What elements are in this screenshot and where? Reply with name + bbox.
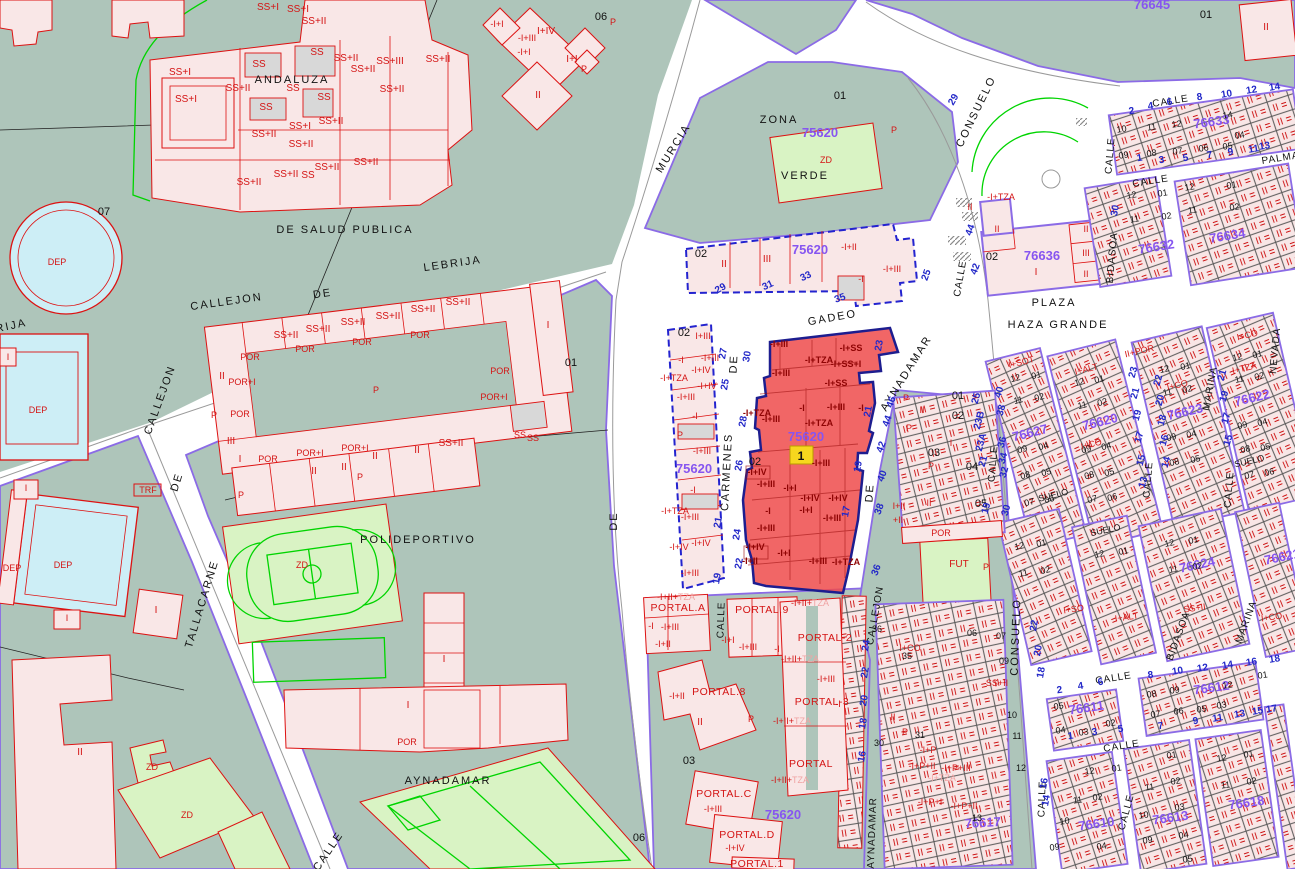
map-label: TRF bbox=[139, 485, 157, 495]
map-label: I bbox=[25, 483, 28, 493]
map-label: ZD bbox=[296, 560, 308, 570]
map-label: -I+III bbox=[681, 568, 699, 578]
map-label: 14 bbox=[1222, 109, 1233, 120]
map-label: -I+II bbox=[841, 242, 857, 252]
map-label: -I+II+TZA bbox=[781, 654, 819, 664]
map-label: 75620 bbox=[802, 125, 838, 140]
map-label: -I+II+TZA bbox=[773, 716, 811, 726]
map-label: SS+II bbox=[274, 169, 299, 180]
map-label: POR bbox=[490, 366, 510, 376]
map-label: 10 bbox=[1138, 809, 1149, 820]
plaza-stairs-3 bbox=[948, 236, 966, 245]
map-label: -I+III bbox=[817, 674, 835, 684]
map-label: -I+TZA bbox=[805, 355, 834, 365]
map-label: 19 bbox=[1131, 408, 1145, 422]
map-label: SS bbox=[259, 102, 273, 113]
map-label: -I+I bbox=[777, 548, 790, 558]
map-label: SS+I bbox=[175, 94, 197, 105]
map-label: -I bbox=[774, 644, 780, 654]
map-label: -I+P+II bbox=[908, 761, 935, 771]
map-label: 07 bbox=[1150, 708, 1161, 719]
map-label: PLAZA bbox=[1032, 297, 1077, 309]
map-label: -I+SS+I bbox=[831, 359, 862, 369]
map-label: 01 bbox=[1257, 669, 1268, 680]
map-label: -I+IV bbox=[800, 493, 819, 503]
map-label: POR bbox=[352, 337, 372, 347]
map-label: 5 bbox=[1117, 724, 1125, 736]
map-label: I+III bbox=[695, 331, 710, 341]
map-label: 75620 bbox=[792, 242, 828, 257]
map-label: DEP bbox=[29, 405, 48, 415]
map-label: POR+I bbox=[341, 443, 368, 453]
map-label: PORTAL.C bbox=[696, 788, 752, 800]
map-label: -I+I bbox=[517, 47, 530, 57]
map-label: PORTAL-2 bbox=[798, 632, 852, 644]
map-label: 75620 bbox=[788, 429, 824, 444]
map-label: 13 bbox=[972, 813, 982, 823]
map-label: POR+I bbox=[480, 392, 507, 402]
map-label: 11 bbox=[1144, 781, 1155, 792]
map-label: 12 bbox=[1093, 548, 1105, 560]
map-label: -I+III bbox=[770, 339, 788, 349]
dense-block-76624[interactable] bbox=[1139, 509, 1250, 661]
map-label: +II bbox=[893, 515, 903, 525]
map-label: 11 bbox=[1212, 712, 1225, 725]
map-label: 75620 bbox=[765, 807, 801, 822]
map-label: P bbox=[748, 714, 754, 724]
map-label: II bbox=[994, 224, 999, 234]
map-label: P bbox=[891, 125, 897, 135]
map-label: -I+II bbox=[742, 556, 758, 566]
map-label: 01 bbox=[1187, 534, 1199, 546]
map-label: 02 bbox=[1229, 201, 1240, 212]
map-label: 32 bbox=[998, 465, 1012, 479]
map-label: -I bbox=[678, 355, 684, 365]
map-label: 05 bbox=[1196, 703, 1207, 714]
plaza-tree-arc-1 bbox=[972, 98, 1088, 172]
map-label: ZD bbox=[181, 810, 193, 820]
map-label: I bbox=[547, 320, 550, 331]
map-label: P bbox=[581, 64, 587, 74]
map-label: 06 bbox=[633, 832, 645, 844]
map-label: 02 bbox=[1161, 210, 1172, 221]
cadastral-map-stage: 1 ANDALUZADE SALUD PUBLICACALLEJONDELEBR… bbox=[0, 0, 1295, 869]
map-label: SS bbox=[527, 433, 539, 443]
map-label: POR+I bbox=[296, 448, 323, 458]
map-label: CALLE bbox=[952, 260, 969, 298]
map-label: II bbox=[1083, 224, 1088, 234]
map-label: 01 bbox=[1243, 748, 1254, 759]
map-label: 05 bbox=[1182, 853, 1193, 864]
map-label: 06 bbox=[595, 11, 607, 23]
map-label: SS+I bbox=[287, 4, 309, 15]
map-label: SS+II bbox=[380, 84, 405, 95]
map-label: SS+II bbox=[351, 64, 376, 75]
map-label: -I+III bbox=[701, 353, 719, 363]
map-label: -I+IV bbox=[828, 493, 847, 503]
map-label: -I+III bbox=[809, 556, 827, 566]
map-label: 14 bbox=[1221, 659, 1234, 672]
map-label: -I bbox=[799, 403, 805, 413]
map-label: I bbox=[407, 700, 410, 711]
map-label: 02 bbox=[1092, 791, 1103, 802]
map-label: I bbox=[443, 654, 446, 665]
map-label: 02 bbox=[695, 248, 707, 260]
map-label: 08 bbox=[1146, 147, 1157, 158]
map-label: -I+IV bbox=[745, 542, 764, 552]
map-label: POR bbox=[230, 409, 250, 419]
map-label: ZD bbox=[820, 155, 832, 165]
map-label: II bbox=[697, 717, 703, 728]
map-label: 03 bbox=[1174, 801, 1185, 812]
map-label: VERDE bbox=[781, 170, 829, 182]
map-label: 36 bbox=[872, 624, 882, 634]
map-label: -I bbox=[858, 274, 864, 284]
map-label: II bbox=[967, 202, 972, 212]
u-building-gray-ss[interactable] bbox=[510, 401, 547, 431]
map-label: SS+II bbox=[446, 297, 471, 308]
map-label: -I bbox=[690, 485, 696, 495]
map-label: 30 bbox=[741, 350, 754, 363]
map-label: 31 bbox=[915, 730, 925, 740]
map-label: 42 bbox=[969, 262, 983, 277]
map-label: SS+II bbox=[274, 330, 299, 341]
map-label: -I+I bbox=[721, 635, 734, 645]
map-label: 16 bbox=[1245, 656, 1258, 669]
plaza-tree-arc-2 bbox=[982, 132, 1078, 196]
map-label: CARMENES bbox=[719, 432, 735, 511]
map-label: GADEO bbox=[807, 308, 858, 328]
map-label: 30 bbox=[1000, 503, 1014, 517]
map-label: SS+II bbox=[289, 139, 314, 150]
map-label: SS+I bbox=[289, 121, 311, 132]
map-label: -I+III bbox=[772, 368, 790, 378]
map-label: 12 bbox=[1216, 752, 1227, 763]
map-label: 12 bbox=[1245, 84, 1258, 97]
map-label: 4 bbox=[1077, 681, 1085, 693]
map-label: II bbox=[1263, 22, 1269, 33]
map-label: POLIDEPORTIVO bbox=[360, 534, 476, 546]
block-top-wedge[interactable] bbox=[705, 0, 856, 54]
map-label: SS+II bbox=[334, 53, 359, 64]
map-label: 01 bbox=[952, 390, 964, 402]
map-label: 01 bbox=[565, 357, 577, 369]
map-label: POR bbox=[410, 330, 430, 340]
map-label: HAZA GRANDE bbox=[1008, 319, 1109, 331]
map-label: 02 bbox=[986, 251, 998, 263]
map-label: SS bbox=[514, 430, 526, 440]
map-label: DEP bbox=[3, 563, 22, 573]
map-label: 10 bbox=[1220, 88, 1233, 101]
map-label: -I+II bbox=[655, 639, 671, 649]
map-label: II bbox=[341, 462, 347, 473]
map-label: DEP bbox=[54, 560, 73, 570]
map-label: -I+I bbox=[490, 19, 503, 29]
map-label: -I bbox=[835, 699, 841, 709]
map-label: PORTAL-3 bbox=[795, 696, 849, 708]
map-label: 24 bbox=[731, 528, 744, 541]
map-label: I+I bbox=[566, 54, 577, 65]
map-label: -I+IV bbox=[691, 365, 710, 375]
map-label: SS+II bbox=[986, 678, 1008, 688]
map-label: II bbox=[535, 90, 541, 101]
map-label: 11 bbox=[1187, 204, 1198, 215]
map-label: 76617 bbox=[964, 814, 1001, 831]
map-label: SS+II bbox=[341, 317, 366, 328]
map-label: SS+II bbox=[426, 54, 451, 65]
plaza-stairs-4 bbox=[953, 252, 971, 261]
map-label: SS+I bbox=[257, 2, 279, 13]
map-label: DEP bbox=[48, 257, 67, 267]
dashed-parcel-west-gray-1 bbox=[678, 424, 714, 439]
map-label: -I+III bbox=[681, 512, 699, 522]
map-label: I+II bbox=[893, 501, 906, 511]
cadastral-map-canvas[interactable]: 1 ANDALUZADE SALUD PUBLICACALLEJONDELEBR… bbox=[0, 0, 1295, 869]
map-label: SS+II bbox=[411, 304, 436, 315]
map-label: -I+III bbox=[677, 392, 695, 402]
map-label: -I+P bbox=[920, 745, 937, 755]
map-label: DE SALUD PUBLICA bbox=[276, 224, 413, 236]
map-label: 04 bbox=[1055, 724, 1066, 735]
map-label: -I+TZA bbox=[660, 373, 688, 383]
map-label: POR bbox=[240, 352, 260, 362]
map-label: 12 bbox=[1016, 763, 1026, 773]
map-label: 12 bbox=[1184, 181, 1195, 192]
map-label: 09 bbox=[1169, 684, 1180, 695]
map-label: SS bbox=[310, 47, 324, 58]
map-label: -I+TZA bbox=[805, 418, 834, 428]
map-label: -I+III bbox=[827, 402, 845, 412]
map-label: SS+II bbox=[376, 311, 401, 322]
big-bottom-building[interactable] bbox=[284, 684, 568, 752]
map-label: -I+III bbox=[757, 479, 775, 489]
map-label: -I+II+TZA bbox=[771, 775, 809, 785]
small-building-i[interactable] bbox=[133, 589, 183, 639]
map-label: III bbox=[1082, 248, 1090, 258]
map-label: II bbox=[919, 405, 924, 415]
map-label: SS+II bbox=[315, 162, 340, 173]
map-label: II bbox=[219, 371, 225, 382]
map-label: -I bbox=[858, 403, 864, 413]
map-label: II bbox=[311, 466, 317, 477]
map-label: 02 bbox=[952, 410, 964, 422]
map-label: SS+II bbox=[354, 157, 379, 168]
map-label: 14 bbox=[1268, 81, 1281, 94]
andaluza-ss-court[interactable] bbox=[162, 78, 234, 148]
map-label: ZD bbox=[146, 762, 158, 772]
map-label: 17 bbox=[1265, 703, 1278, 716]
map-label: I bbox=[1035, 267, 1038, 278]
map-label: 05 bbox=[1053, 700, 1064, 711]
map-label: 01 bbox=[1226, 179, 1237, 190]
map-label: -I+P+I bbox=[918, 797, 943, 807]
map-label: SS+II bbox=[226, 83, 251, 94]
map-label: -I+TZA bbox=[987, 192, 1015, 202]
map-label: III bbox=[227, 436, 235, 447]
map-label: P bbox=[928, 461, 934, 471]
map-label: II bbox=[926, 498, 931, 508]
map-label: SS+II bbox=[302, 16, 327, 27]
map-label: 44 bbox=[964, 223, 978, 238]
map-label: -I+III bbox=[757, 523, 775, 533]
map-label: POR bbox=[258, 454, 278, 464]
map-label: -I+III bbox=[518, 33, 536, 43]
map-label: -I+III bbox=[661, 622, 679, 632]
map-label: 2 bbox=[1056, 685, 1064, 697]
map-label: 10 bbox=[1059, 815, 1070, 826]
map-label: 25 bbox=[920, 268, 934, 283]
map-label: -I+IV bbox=[669, 542, 688, 552]
map-label: POR bbox=[931, 528, 951, 538]
map-label: DE bbox=[728, 354, 741, 374]
map-label: CONSUELO bbox=[954, 74, 999, 149]
map-label: -I+IV bbox=[725, 843, 744, 853]
map-label: -I+III bbox=[823, 513, 841, 523]
map-label: 18 bbox=[1268, 653, 1281, 666]
map-label: II bbox=[1083, 269, 1088, 279]
map-label: P bbox=[983, 562, 989, 572]
map-label: 21 bbox=[1129, 386, 1143, 400]
map-label: POR+I bbox=[228, 377, 255, 387]
map-label: CONSUELO bbox=[1009, 598, 1024, 676]
map-label: ZONA bbox=[760, 114, 799, 126]
map-label: I+IV bbox=[537, 26, 555, 37]
map-label: 06 bbox=[967, 628, 977, 638]
selected-parcel-number: 1 bbox=[798, 449, 805, 463]
dense-block-76613[interactable] bbox=[1124, 740, 1207, 869]
map-label: -I bbox=[648, 621, 654, 631]
map-label: 11 bbox=[1146, 121, 1157, 132]
map-label: 26 bbox=[733, 459, 746, 472]
map-label: -I+I bbox=[783, 483, 796, 493]
map-label: 06 bbox=[1173, 705, 1184, 716]
map-label: I bbox=[7, 352, 10, 362]
map-label: -I+III bbox=[762, 414, 780, 424]
map-label: 08 bbox=[1146, 688, 1157, 699]
map-label: P bbox=[373, 385, 379, 395]
map-label: -I+TZA bbox=[928, 773, 956, 783]
map-label: DE bbox=[863, 483, 876, 503]
map-label: II bbox=[372, 451, 378, 462]
plaza-stairs-5 bbox=[1076, 118, 1087, 126]
map-label: 11 bbox=[1012, 731, 1021, 741]
map-label: P bbox=[211, 410, 217, 420]
map-label: DE bbox=[169, 471, 186, 493]
map-label: -I+II+TZA bbox=[791, 598, 829, 608]
map-label: 01 bbox=[1200, 9, 1212, 21]
map-label: 01 bbox=[1117, 545, 1129, 557]
map-label: 11 bbox=[1129, 213, 1140, 224]
map-label: 21 bbox=[712, 516, 725, 529]
map-label: 11 bbox=[1072, 794, 1083, 805]
map-label: 8 bbox=[1196, 92, 1204, 104]
block-top-right-76645[interactable] bbox=[866, 0, 1295, 88]
map-label: PORTAL.D bbox=[719, 829, 775, 841]
map-label: SS+II bbox=[306, 324, 331, 335]
map-label: PORTAL.A bbox=[651, 602, 706, 614]
map-label: -I+III bbox=[812, 458, 830, 468]
map-label: 18 bbox=[1035, 666, 1048, 679]
map-label: 10 bbox=[1171, 665, 1184, 678]
map-label: 10 bbox=[1007, 710, 1017, 720]
map-label: 02 bbox=[1105, 717, 1116, 728]
map-label: -I bbox=[765, 506, 771, 516]
map-label: 09 bbox=[1142, 834, 1153, 845]
map-label: SS+II bbox=[439, 438, 464, 449]
map-label: I bbox=[950, 438, 953, 448]
map-label: 02 bbox=[1170, 775, 1181, 786]
map-label: -I+III bbox=[739, 642, 757, 652]
map-label: SS+III bbox=[376, 56, 404, 67]
map-label: I bbox=[66, 613, 69, 623]
map-label: -I+TZA bbox=[832, 557, 861, 567]
map-label: 09 bbox=[1049, 841, 1060, 852]
map-label: -I+IV bbox=[747, 467, 766, 477]
map-label: 12 bbox=[1163, 537, 1175, 549]
map-label: P bbox=[903, 393, 909, 403]
map-label: PORTAL.9 bbox=[735, 604, 789, 616]
map-label: 12 bbox=[1196, 662, 1209, 675]
map-label: SS bbox=[286, 83, 300, 94]
map-label: 09 bbox=[999, 656, 1009, 666]
map-label: 11 bbox=[1220, 779, 1231, 790]
map-label: 01 bbox=[1157, 187, 1168, 198]
map-label: POR bbox=[397, 737, 417, 747]
map-label: III bbox=[763, 254, 771, 265]
map-label: P bbox=[610, 17, 616, 27]
map-label: 03 bbox=[1216, 699, 1227, 710]
map-label: -I+SS bbox=[840, 343, 863, 353]
map-label: 13 bbox=[1233, 708, 1246, 721]
map-label: -I bbox=[692, 411, 698, 421]
map-label: II bbox=[890, 712, 895, 722]
map-label: SS bbox=[252, 59, 266, 70]
l-building-sw[interactable] bbox=[12, 655, 116, 869]
map-label: 01 bbox=[834, 90, 846, 102]
map-label: -I+P+III bbox=[941, 763, 971, 773]
map-label: 09 bbox=[1118, 149, 1129, 160]
map-label: -I+III bbox=[883, 264, 901, 274]
map-label: 19 bbox=[852, 460, 865, 473]
plaza-stairs-2 bbox=[962, 212, 978, 221]
map-label: 04 bbox=[1178, 829, 1189, 840]
building-76636[interactable] bbox=[978, 190, 1101, 295]
map-label: 17 bbox=[1133, 430, 1147, 444]
map-label: I bbox=[239, 454, 242, 465]
map-label: 12 bbox=[1084, 765, 1095, 776]
map-label: -I+IV bbox=[697, 381, 716, 391]
rect-pool[interactable] bbox=[14, 494, 139, 617]
map-label: -I+P+II bbox=[950, 801, 977, 811]
map-label: SS+II bbox=[319, 116, 344, 127]
map-label: 76645 bbox=[1134, 0, 1170, 12]
map-label: 25 bbox=[719, 378, 732, 391]
map-label: 02 bbox=[1246, 775, 1257, 786]
map-label: DE bbox=[608, 511, 620, 530]
map-label: 07 bbox=[996, 631, 1006, 641]
map-label: 13 bbox=[1258, 140, 1271, 153]
map-label: SS+I bbox=[169, 67, 191, 78]
map-label: 02 bbox=[678, 327, 690, 339]
map-label: POR bbox=[295, 344, 315, 354]
map-label: 10 bbox=[1116, 123, 1127, 134]
map-label: P bbox=[357, 472, 363, 482]
map-label: -I+SS bbox=[825, 378, 848, 388]
map-label: 04 bbox=[1234, 129, 1245, 140]
map-label: II bbox=[414, 445, 420, 456]
map-label: II bbox=[721, 259, 727, 270]
map-label: II bbox=[77, 747, 83, 758]
